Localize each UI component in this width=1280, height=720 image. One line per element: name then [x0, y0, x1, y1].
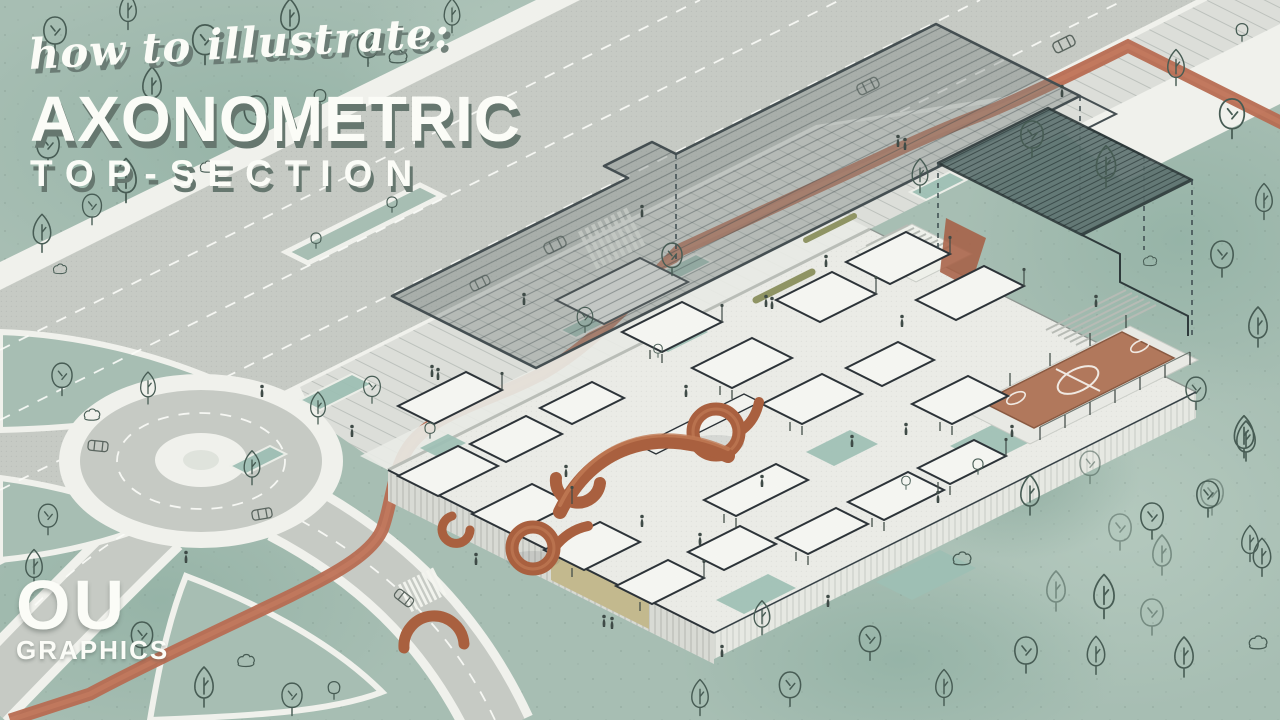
thumbnail: how to illustrate: AXONOMETRIC TOP-SECTI…: [0, 0, 1280, 720]
title-subtitle: TOP-SECTION: [30, 153, 590, 195]
title-block: how to illustrate: AXONOMETRIC TOP-SECTI…: [30, 30, 590, 195]
channel-logo: OU GRAPHICS: [16, 572, 169, 666]
logo-word: GRAPHICS: [16, 635, 169, 666]
page-title: AXONOMETRIC: [30, 87, 590, 151]
logo-acronym: OU: [16, 572, 169, 639]
